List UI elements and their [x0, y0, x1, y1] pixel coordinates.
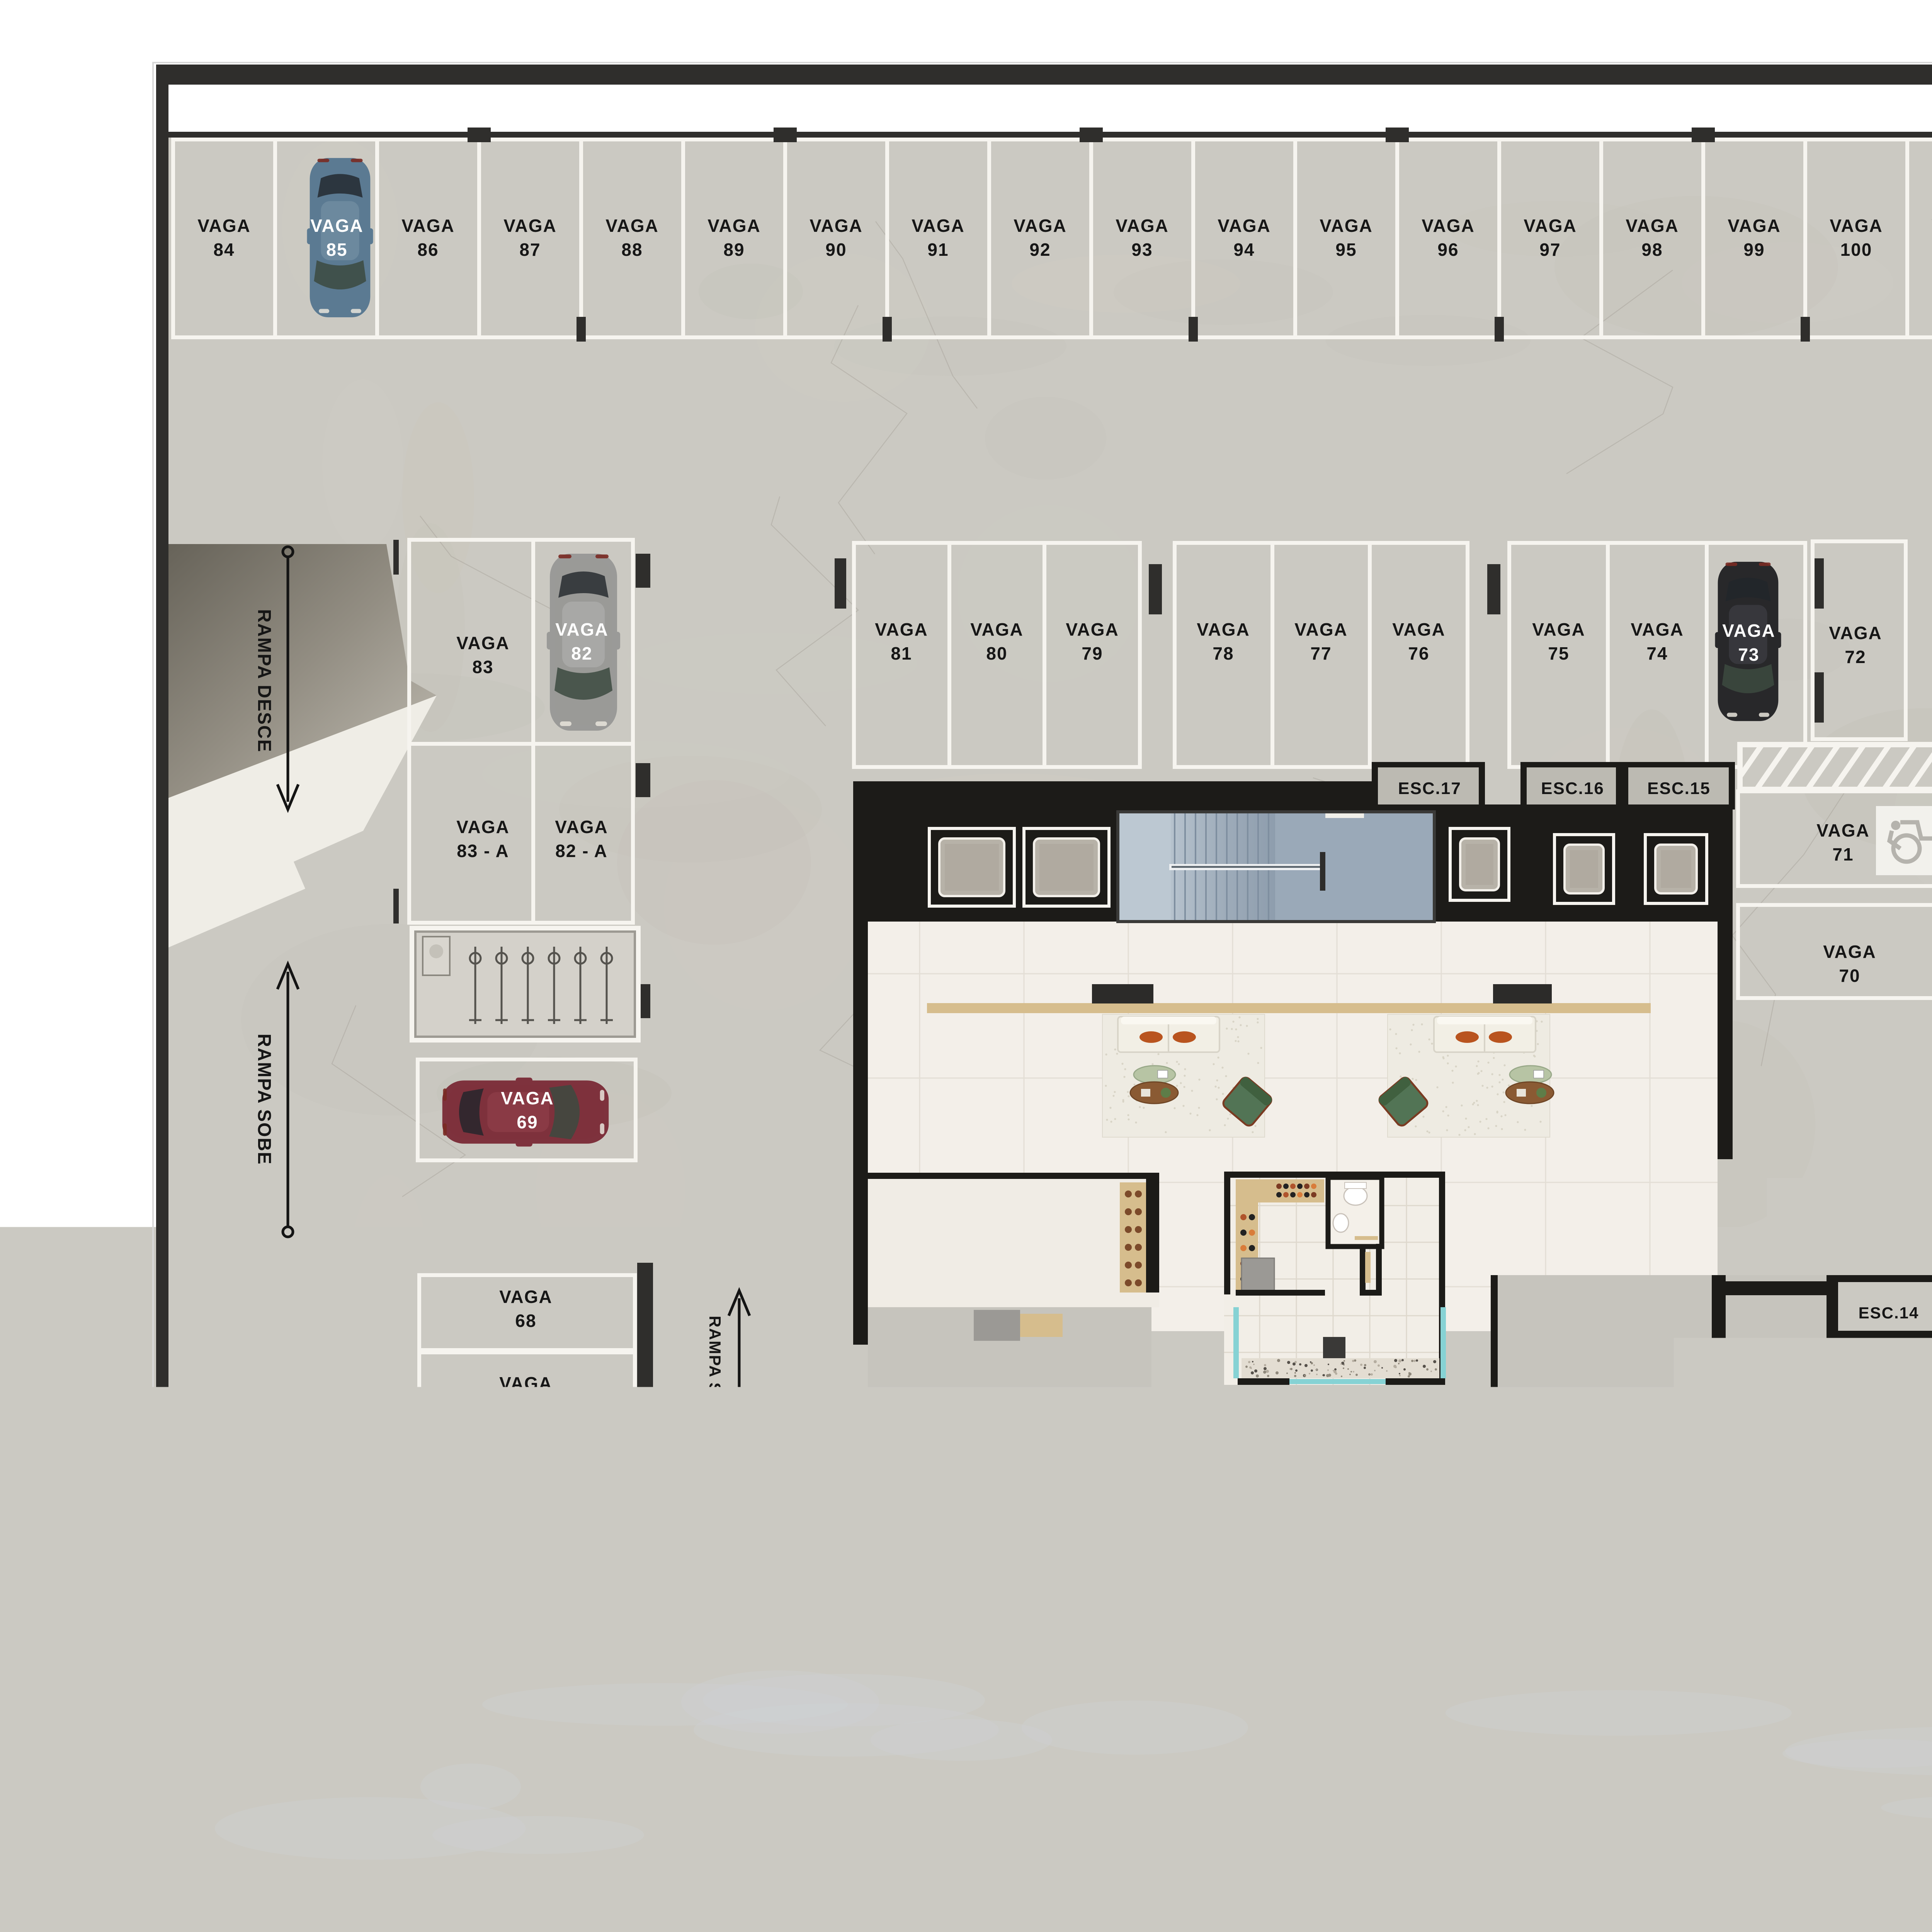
svg-text:VAGA: VAGA [1320, 216, 1373, 236]
svg-text:VAGA: VAGA [1830, 216, 1883, 236]
svg-text:81: 81 [891, 643, 912, 663]
svg-text:VAGA: VAGA [1392, 619, 1446, 639]
svg-text:82 - A: 82 - A [555, 841, 608, 861]
svg-text:VAGA: VAGA [501, 1088, 554, 1108]
svg-text:PAV. TÉRREO: PAV. TÉRREO [1818, 1881, 1932, 1919]
svg-text:ESC.16: ESC.16 [1541, 779, 1604, 798]
svg-text:77: 77 [1310, 643, 1332, 663]
svg-text:VAGA: VAGA [970, 619, 1024, 639]
svg-text:96: 96 [1437, 240, 1459, 260]
svg-text:VAGA: VAGA [1294, 619, 1348, 639]
svg-text:ESC.14: ESC.14 [1859, 1304, 1919, 1322]
svg-text:69: 69 [517, 1112, 538, 1132]
svg-text:93: 93 [1131, 240, 1153, 260]
svg-text:VAGA: VAGA [401, 216, 455, 236]
svg-text:VAGA: VAGA [1722, 621, 1776, 641]
svg-text:86: 86 [417, 240, 439, 260]
svg-text:VAGA: VAGA [1422, 216, 1475, 236]
svg-text:VAGA: VAGA [1197, 619, 1250, 639]
svg-text:83 - A: 83 - A [457, 841, 509, 861]
svg-text:VAGA: VAGA [1823, 942, 1876, 962]
svg-text:VAGA: VAGA [1829, 623, 1882, 643]
svg-text:74: 74 [1646, 643, 1668, 663]
svg-text:VAGA: VAGA [912, 216, 965, 236]
svg-text:VAGA: VAGA [875, 619, 928, 639]
svg-text:97: 97 [1539, 240, 1561, 260]
svg-text:VAGA: VAGA [555, 817, 608, 837]
svg-text:76: 76 [1408, 643, 1429, 663]
svg-text:RAMPA DESCE: RAMPA DESCE [254, 609, 274, 752]
svg-text:ESC.13: ESC.13 [1859, 1368, 1919, 1386]
svg-text:VAGA: VAGA [605, 216, 659, 236]
svg-text:95: 95 [1335, 240, 1357, 260]
svg-text:VAGA: VAGA [810, 216, 863, 236]
svg-text:84: 84 [213, 240, 235, 260]
svg-text:VAGA: VAGA [456, 817, 510, 837]
svg-text:75: 75 [1548, 643, 1569, 663]
svg-text:VAGA: VAGA [1728, 216, 1781, 236]
svg-text:VAGA: VAGA [1218, 216, 1271, 236]
svg-text:92: 92 [1029, 240, 1051, 260]
svg-text:ESC.17: ESC.17 [1398, 779, 1461, 798]
svg-text:71: 71 [1832, 844, 1854, 864]
svg-text:83: 83 [472, 657, 493, 677]
svg-text:73: 73 [1738, 645, 1759, 665]
svg-text:VAGA: VAGA [1066, 619, 1119, 639]
svg-text:70: 70 [1839, 966, 1860, 986]
svg-text:67: 67 [515, 1397, 536, 1417]
svg-text:78: 78 [1213, 643, 1234, 663]
svg-text:82: 82 [571, 643, 592, 663]
svg-text:100: 100 [1840, 240, 1872, 260]
svg-text:72: 72 [1845, 647, 1866, 667]
svg-text:85: 85 [326, 240, 347, 260]
svg-text:RAMPA SOBE: RAMPA SOBE [254, 1034, 274, 1165]
svg-text:VAGA: VAGA [707, 216, 761, 236]
svg-text:79: 79 [1082, 643, 1103, 663]
svg-text:88: 88 [621, 240, 643, 260]
svg-text:68: 68 [515, 1311, 536, 1331]
svg-text:ESC.12: ESC.12 [1859, 1434, 1919, 1452]
svg-text:VAGA: VAGA [499, 1373, 553, 1393]
svg-text:VAGA: VAGA [197, 216, 251, 236]
svg-text:VAGA: VAGA [1631, 619, 1684, 639]
svg-text:87: 87 [519, 240, 541, 260]
svg-text:VAGA: VAGA [456, 633, 510, 653]
svg-text:VAGA: VAGA [1816, 820, 1870, 840]
svg-text:98: 98 [1641, 240, 1663, 260]
svg-text:VAGA: VAGA [1116, 216, 1169, 236]
svg-text:RUA R-05: RUA R-05 [1254, 1881, 1434, 1919]
svg-text:90: 90 [825, 240, 847, 260]
svg-text:ESC.15: ESC.15 [1647, 779, 1711, 798]
svg-text:94: 94 [1233, 240, 1255, 260]
svg-text:89: 89 [723, 240, 745, 260]
svg-text:VAGA: VAGA [499, 1287, 553, 1307]
svg-text:91: 91 [927, 240, 949, 260]
svg-text:VAGA: VAGA [1524, 216, 1577, 236]
svg-text:99: 99 [1743, 240, 1765, 260]
svg-text:VAGA: VAGA [503, 216, 557, 236]
svg-text:VAGA: VAGA [1014, 216, 1067, 236]
svg-text:80: 80 [986, 643, 1007, 663]
svg-text:VAGA: VAGA [1532, 619, 1585, 639]
svg-text:VAGA: VAGA [1626, 216, 1679, 236]
svg-text:VAGA: VAGA [555, 619, 609, 639]
svg-text:RAMPA SOBE: RAMPA SOBE [706, 1316, 724, 1432]
svg-text:VAGA: VAGA [310, 216, 364, 236]
